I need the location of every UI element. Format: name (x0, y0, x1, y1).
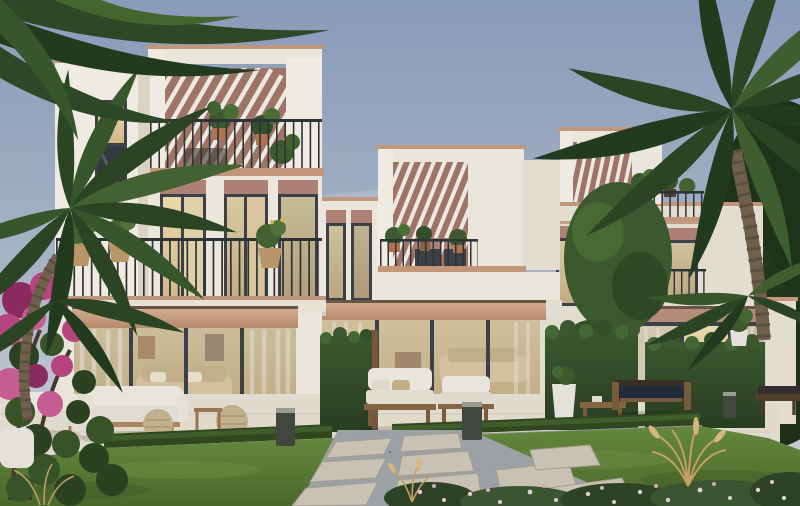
scene-image (0, 0, 800, 506)
vignette (0, 0, 800, 506)
townhouse-rendering (0, 0, 800, 506)
